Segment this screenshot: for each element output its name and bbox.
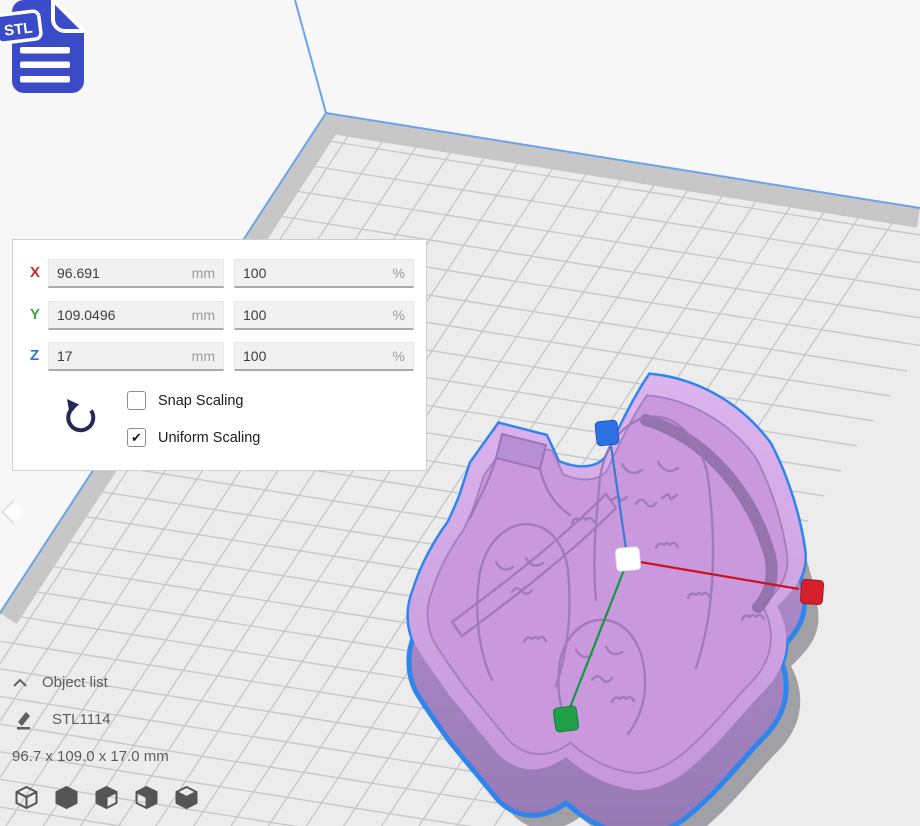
uniform-scaling-label: Uniform Scaling (158, 430, 260, 446)
pencil-icon (14, 708, 32, 730)
snap-scaling-checkbox-row[interactable]: Snap Scaling (127, 391, 243, 410)
application-window: STL X mm % Y mm % (0, 0, 920, 826)
y-size-field: mm (48, 301, 224, 330)
y-size-unit: mm (192, 307, 215, 323)
object-list-item[interactable]: STL1114 (14, 708, 111, 730)
scale-handle-x[interactable] (800, 579, 824, 604)
reset-scale-button[interactable] (61, 398, 101, 440)
reset-counterclockwise-arrow-icon (61, 398, 101, 440)
x-percent-input[interactable] (243, 265, 343, 281)
z-axis-label: Z (30, 347, 46, 364)
scale-handle-z[interactable] (595, 420, 619, 446)
z-percent-input[interactable] (243, 348, 343, 364)
chevron-up-icon (12, 677, 28, 689)
scale-handle-center[interactable] (615, 546, 641, 571)
snap-scaling-checkbox[interactable] (127, 391, 146, 410)
y-percent-field: % (234, 301, 414, 330)
z-size-field: mm (48, 342, 224, 371)
object-name: STL1114 (52, 711, 111, 728)
scale-row-y: Y mm % (13, 301, 426, 330)
y-percent-unit: % (393, 307, 405, 323)
uniform-scaling-checkbox[interactable]: ✔ (127, 428, 146, 447)
3d-view-icon[interactable] (13, 784, 40, 811)
left-view-icon[interactable] (133, 784, 160, 811)
object-list-toggle[interactable]: Object list (12, 674, 108, 691)
uniform-scaling-checkbox-row[interactable]: ✔ Uniform Scaling (127, 428, 260, 447)
x-percent-field: % (234, 259, 414, 288)
x-size-field: mm (48, 259, 224, 288)
scale-row-x: X mm % (13, 259, 426, 288)
camera-view-presets (13, 784, 200, 811)
y-percent-input[interactable] (243, 307, 343, 323)
dimensions-text: 96.7 x 109.0 x 17.0 mm (12, 748, 169, 765)
object-list-label: Object list (42, 674, 108, 691)
z-size-input[interactable] (57, 348, 157, 364)
scale-row-z: Z mm % (13, 342, 426, 371)
stl-label-plate: STL (0, 11, 42, 44)
scale-handle-y[interactable] (553, 706, 579, 733)
y-size-input[interactable] (57, 307, 157, 323)
snap-scaling-label: Snap Scaling (158, 393, 243, 409)
x-percent-unit: % (393, 265, 405, 281)
front-view-icon[interactable] (53, 784, 80, 811)
x-axis-label: X (30, 264, 46, 281)
model-dimensions-readout: 96.7 x 109.0 x 17.0 mm (12, 748, 169, 765)
x-size-unit: mm (192, 265, 215, 281)
scale-tool-panel: X mm % Y mm % Z mm (12, 239, 427, 471)
top-view-icon[interactable] (93, 784, 120, 811)
right-view-icon[interactable] (173, 784, 200, 811)
z-percent-unit: % (393, 348, 405, 364)
x-size-input[interactable] (57, 265, 157, 281)
y-axis-label: Y (30, 306, 46, 323)
z-size-unit: mm (192, 348, 215, 364)
stl-label-text: STL (3, 19, 33, 39)
stl-file-badge: STL (0, 0, 92, 98)
z-percent-field: % (234, 342, 414, 371)
